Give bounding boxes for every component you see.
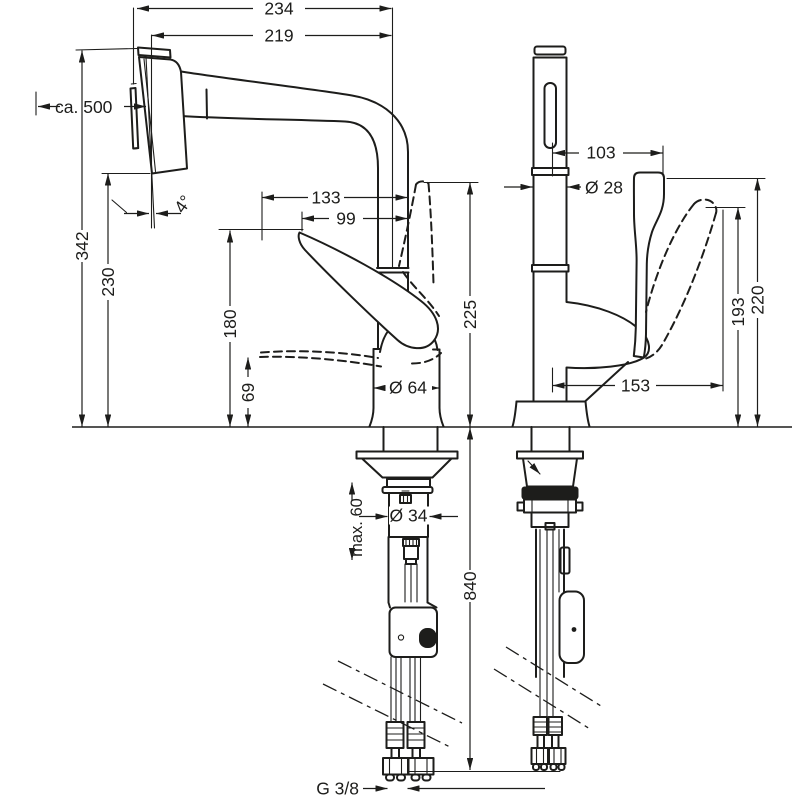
- gasket-band: [522, 487, 579, 500]
- handle-side-solid: [299, 233, 438, 349]
- handle-side-dashed-down: [260, 351, 441, 366]
- hose-connectors: [383, 657, 434, 781]
- side-view-installation: [323, 427, 462, 781]
- dim-label-342: 342: [72, 231, 92, 260]
- dim-label-219: 219: [264, 26, 293, 46]
- escutcheon-plate: [357, 452, 458, 459]
- front-view: [513, 47, 717, 427]
- front-view-installation: [494, 427, 601, 770]
- dim-label-d28: Ø 28: [585, 178, 623, 198]
- faucet-dimension-drawing: 234 219 ca. 500 342 230 4° 133 99 180 69…: [0, 0, 800, 800]
- front-base: [513, 402, 590, 427]
- front-hoses: [532, 530, 585, 771]
- spray-head: [131, 48, 188, 174]
- dim-label-234: 234: [264, 0, 293, 19]
- dim-label-230: 230: [98, 267, 118, 296]
- dim-label-4deg: 4°: [170, 191, 196, 216]
- technical-drawing-page: 234 219 ca. 500 342 230 4° 133 99 180 69…: [0, 0, 800, 800]
- spray-selector-slot: [545, 83, 557, 148]
- mounting-nut: [518, 500, 583, 513]
- dim-label-153: 153: [621, 376, 650, 396]
- front-handle-solid: [634, 173, 664, 358]
- hose-weight: [390, 608, 438, 658]
- front-hose-weight: [560, 592, 585, 664]
- dim-label-g38: G 3/8: [316, 779, 359, 799]
- dim-label-133: 133: [311, 188, 340, 208]
- dim-label-225: 225: [460, 300, 480, 329]
- supply-hoses: [389, 537, 437, 608]
- dim-label-69: 69: [238, 383, 258, 402]
- dim-label-99: 99: [336, 209, 355, 229]
- dim-label-d64: Ø 64: [389, 378, 427, 398]
- dim-label-193: 193: [728, 297, 748, 326]
- spout-outline: [178, 71, 408, 268]
- spray-face-strip: [131, 88, 139, 149]
- dim-label-ca500: ca. 500: [55, 97, 113, 117]
- side-view: [76, 8, 478, 427]
- front-spout: [532, 47, 569, 402]
- dim-label-180: 180: [220, 309, 240, 338]
- dim-label-220: 220: [748, 285, 768, 314]
- dim-label-d34: Ø 34: [390, 506, 428, 526]
- dim-label-103: 103: [586, 143, 615, 163]
- dim-label-840: 840: [460, 571, 480, 600]
- dim-label-max60: max. 60: [348, 498, 366, 557]
